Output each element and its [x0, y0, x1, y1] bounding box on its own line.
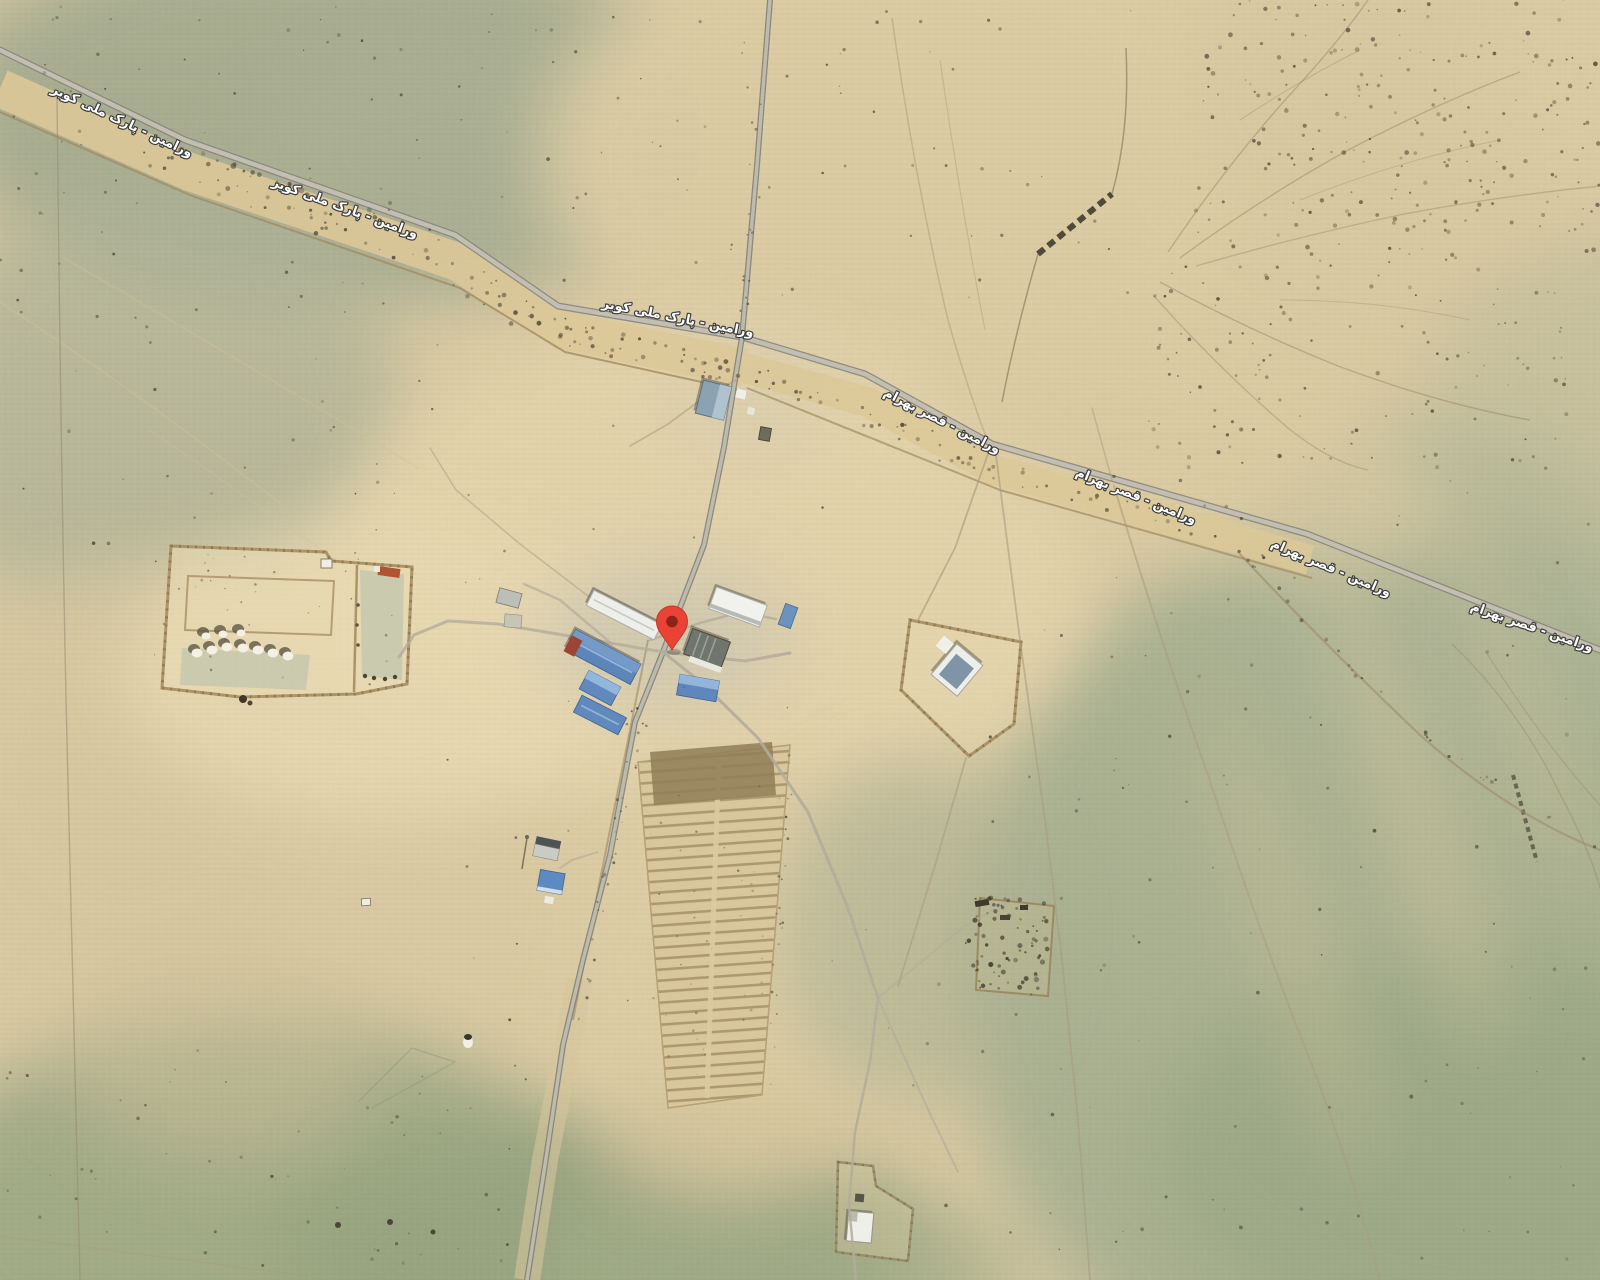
building-sw-blue — [537, 869, 565, 894]
building-blue-right — [676, 674, 719, 702]
building-gray-west — [496, 588, 522, 608]
building-blue-bottom — [573, 695, 626, 735]
building-blue-small — [778, 603, 798, 628]
building-junction-shed-2 — [747, 407, 755, 415]
mast — [525, 835, 529, 839]
qanat-line — [1002, 48, 1537, 862]
dark-tilled-plot — [650, 742, 776, 805]
building-junction-hangar — [693, 377, 732, 420]
mast-shadow — [522, 838, 527, 869]
building-gray-west-2 — [504, 614, 522, 628]
map-pin[interactable] — [657, 606, 688, 655]
compound-left — [162, 546, 412, 706]
pin-shadow — [667, 649, 681, 655]
compound-bottom — [836, 1162, 913, 1261]
pin-body — [657, 606, 688, 650]
satellite-map-canvas[interactable]: ورامین - پارک ملی کویر ورامین - پارک ملی… — [0, 0, 1600, 1280]
map-overlay: ورامین - پارک ملی کویر ورامین - پارک ملی… — [0, 0, 1600, 1280]
building-junction-shed — [735, 388, 747, 399]
gatehouse-shed — [321, 559, 332, 568]
building-west-hut — [361, 898, 371, 906]
pen-pad — [360, 570, 404, 680]
building-white-shed — [706, 584, 768, 627]
drainage-channels — [0, 0, 1600, 888]
terraced-field-plots — [638, 742, 790, 1108]
building-sw-hut — [544, 896, 554, 904]
compound-right — [901, 620, 1021, 756]
building-junction-dark-shed — [758, 427, 771, 442]
pin-dot — [666, 616, 678, 628]
road-label-qasr-4: ورامین - قصر بهرام — [1468, 599, 1595, 655]
building-sw-gray — [533, 836, 562, 861]
building-dark-depot — [679, 625, 732, 673]
